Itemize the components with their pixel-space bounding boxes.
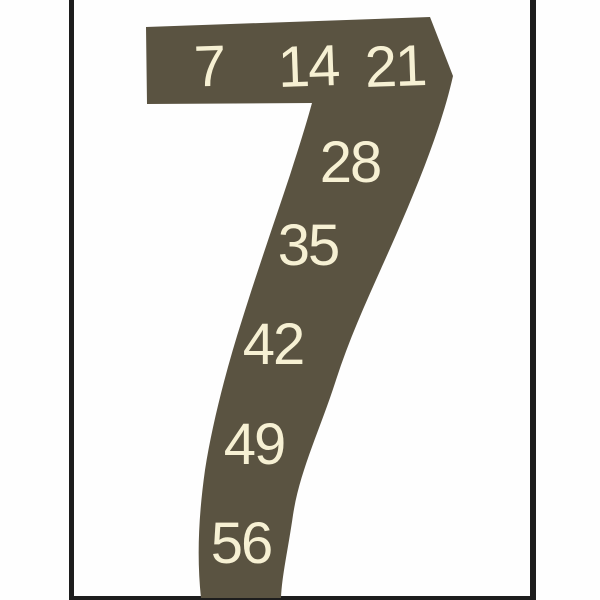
multiple-label-28: 28: [320, 130, 381, 195]
multiple-label-21: 21: [364, 33, 427, 100]
times-table-poster: 7 14 21 28 35 42 49 56: [0, 0, 600, 600]
numeral-seven-graphic: 7 14 21 28 35 42 49 56: [0, 0, 600, 600]
multiple-label-7: 7: [193, 33, 226, 99]
numeral-seven-shape: [146, 17, 453, 598]
multiple-label-56: 56: [211, 511, 272, 576]
multiple-label-35: 35: [278, 213, 339, 278]
multiple-label-42: 42: [243, 312, 304, 377]
multiple-label-14: 14: [277, 33, 340, 100]
multiple-label-49: 49: [224, 412, 285, 477]
